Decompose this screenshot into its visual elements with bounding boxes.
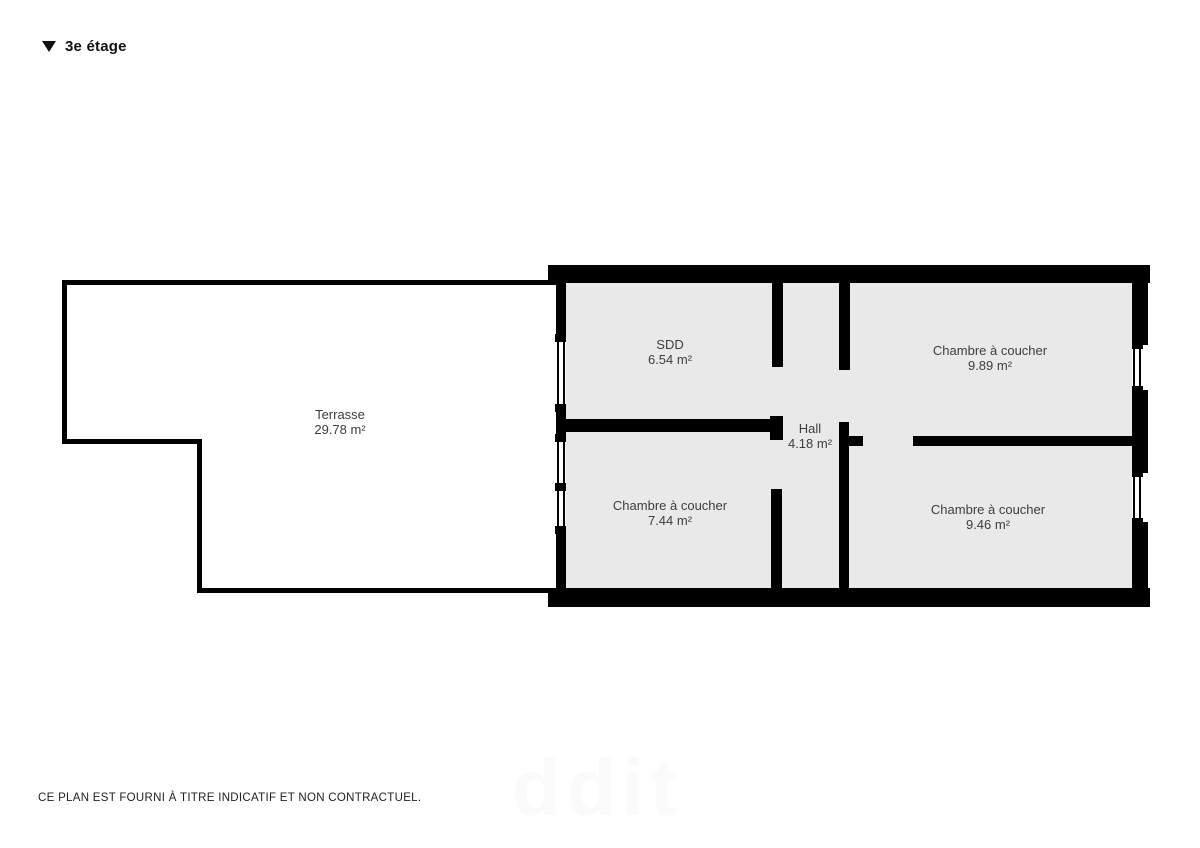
window-glass-line — [1133, 473, 1135, 522]
wall-hall-right-upper — [839, 283, 850, 370]
room-name: Chambre à coucher — [931, 503, 1045, 518]
room-area: 9.89 m² — [933, 359, 1047, 374]
room-label-hall: Hall 4.18 m² — [788, 422, 832, 451]
room-label-terrasse: Terrasse 29.78 m² — [314, 408, 365, 437]
floor-plan-canvas: 3e étage — [0, 0, 1200, 848]
window-glass-line — [557, 338, 559, 410]
terrace-wall-top — [62, 280, 556, 285]
window-bedroom989 — [1132, 345, 1148, 390]
terrace-wall-step-vertical — [197, 439, 202, 593]
triangle-down-icon — [42, 41, 56, 52]
window-end-tick — [1132, 386, 1143, 394]
room-name: Hall — [788, 422, 832, 437]
exterior-wall-top — [548, 265, 1150, 283]
wall-hall-right-lower — [839, 422, 849, 588]
room-name: Chambre à coucher — [613, 499, 727, 514]
room-name: Terrasse — [314, 408, 365, 423]
watermark: ddit — [512, 742, 683, 834]
wall-bedroom744-right — [771, 489, 782, 588]
window-glass-line — [1139, 345, 1141, 390]
window-end-tick — [555, 434, 566, 442]
room-label-sdd: SDD 6.54 m² — [648, 338, 692, 367]
window-end-tick — [555, 526, 566, 534]
terrace-area — [67, 285, 556, 439]
exterior-wall-left-upper — [556, 283, 566, 338]
window-glass-line — [563, 338, 565, 410]
room-name: SDD — [648, 338, 692, 353]
wall-sdd-bottom-endcap — [770, 416, 783, 440]
exterior-wall-right-middle — [1132, 390, 1148, 473]
room-name: Chambre à coucher — [933, 344, 1047, 359]
room-area: 6.54 m² — [648, 353, 692, 368]
room-label-bedroom-744: Chambre à coucher 7.44 m² — [613, 499, 727, 528]
room-area: 9.46 m² — [931, 518, 1045, 533]
room-area: 29.78 m² — [314, 423, 365, 438]
room-area: 4.18 m² — [788, 437, 832, 452]
exterior-wall-left-lower — [556, 530, 566, 588]
window-end-tick — [555, 334, 566, 342]
room-label-bedroom-946: Chambre à coucher 9.46 m² — [931, 503, 1045, 532]
floor-selector-toggle[interactable]: 3e étage — [42, 38, 127, 55]
floor-title: 3e étage — [65, 38, 127, 55]
terrace-wall-bottom — [197, 588, 561, 593]
window-end-tick — [1132, 341, 1143, 349]
exterior-wall-right-lower — [1132, 522, 1148, 588]
exterior-wall-bottom — [548, 588, 1150, 607]
wall-sdd-bottom — [566, 419, 772, 432]
wall-sdd-right — [772, 283, 783, 367]
window-end-tick — [1132, 518, 1143, 526]
window-glass-line — [1139, 473, 1141, 522]
window-mullion-tick — [555, 483, 566, 491]
room-label-bedroom-989: Chambre à coucher 9.89 m² — [933, 344, 1047, 373]
window-end-tick — [1132, 469, 1143, 477]
exterior-wall-right-upper — [1132, 283, 1148, 345]
terrace-wall-left — [62, 280, 67, 444]
window-end-tick — [555, 404, 566, 412]
wall-bedroom-divider-stub — [849, 436, 863, 446]
wall-bedroom-divider — [913, 436, 1132, 446]
window-sdd — [556, 338, 566, 410]
window-bedroom946 — [1132, 473, 1148, 522]
disclaimer-text: CE PLAN EST FOURNI À TITRE INDICATIF ET … — [38, 792, 421, 804]
window-glass-line — [1133, 345, 1135, 390]
terrace-wall-step-horizontal — [62, 439, 202, 444]
room-area: 7.44 m² — [613, 514, 727, 529]
